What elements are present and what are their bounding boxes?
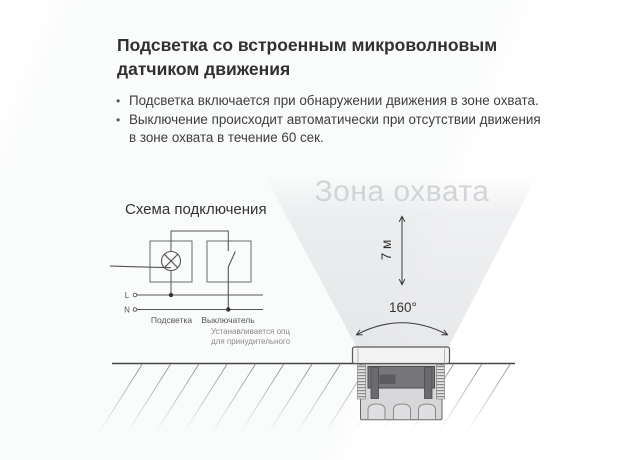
feature-item-auto-off: • Выключение происходит автоматически пр… <box>116 111 556 148</box>
fixture-inner-block <box>380 375 396 385</box>
coverage-illustration: Зона охвата 160° 7 м <box>100 155 560 460</box>
feature-text: Подсветка включается при обнаружении дви… <box>129 92 539 111</box>
feature-text: Выключение происходит автоматически при … <box>129 111 541 148</box>
page-title: Подсветка со встроенным микроволновым да… <box>117 33 557 81</box>
fixture-cable-glands <box>368 404 436 420</box>
fixture-flange <box>353 347 450 364</box>
zone-title: Зона охвата <box>315 175 490 208</box>
feature-text-line: Подсветка включается при обнаружении дви… <box>129 93 539 108</box>
feature-text-line: в зоне охвата в течение 60 сек. <box>129 129 541 148</box>
angle-label: 160° <box>389 300 417 315</box>
fixture-post-right <box>425 367 433 399</box>
fixture-thread-left <box>358 365 366 399</box>
product-info-slide: Подсветка со встроенным микроволновым да… <box>0 0 624 460</box>
bullet-icon: • <box>116 92 129 111</box>
bullet-icon: • <box>116 111 129 130</box>
soil-hatching <box>100 365 510 432</box>
height-label: 7 м <box>379 240 394 261</box>
feature-item-motion-on: • Подсветка включается при обнаружении д… <box>116 92 556 111</box>
feature-list: • Подсветка включается при обнаружении д… <box>116 92 556 148</box>
page-title-line2: датчиком движения <box>117 57 557 81</box>
fixture-cross-section <box>353 347 450 420</box>
feature-text-line: Выключение происходит автоматически при … <box>129 111 541 130</box>
page-title-line1: Подсветка со встроенным микроволновым <box>117 33 557 57</box>
fixture-post-left <box>371 367 379 399</box>
fixture-thread-right <box>437 365 445 399</box>
